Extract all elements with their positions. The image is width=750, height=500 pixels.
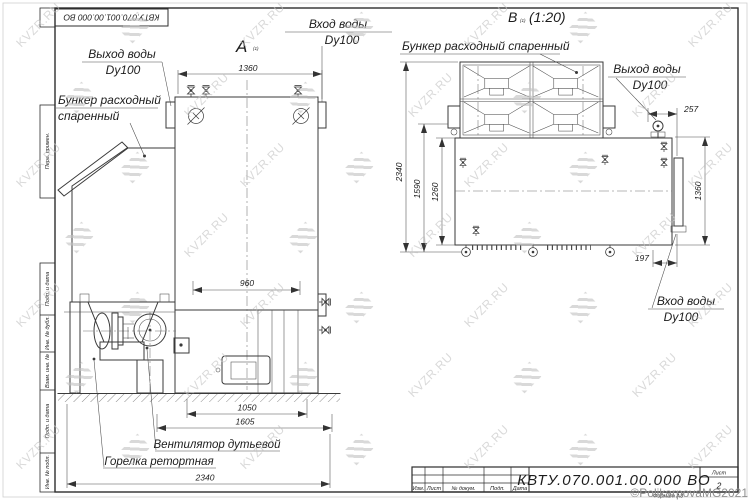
callout-a-water-out-line1: Выход воды xyxy=(88,47,156,61)
dim-a-1050: 1050 xyxy=(238,403,257,413)
dim-b-2340: 2340 xyxy=(394,162,404,182)
margin-label-inv-podl: Инв. № подл. xyxy=(45,455,51,489)
callout-b-water-in-line1: Вход воды xyxy=(657,294,715,308)
dim-b-197: 197 xyxy=(635,253,649,263)
callout-b-water-out-line2: Dy100 xyxy=(633,78,668,92)
sheet-label: Лист xyxy=(711,471,727,477)
dim-b-257: 257 xyxy=(683,104,698,114)
top-doc-number: КВТУ.070.001.00.000 ВО xyxy=(63,13,159,23)
dim-b-1260: 1260 xyxy=(430,182,440,201)
callout-a-water-in-line2: Dy100 xyxy=(325,33,360,47)
margin-label-podp-data-1: Подп. и дата xyxy=(45,272,51,306)
dim-a-2340: 2340 xyxy=(195,473,215,483)
view-a-title-note: (1) xyxy=(253,46,259,51)
view-a: А (1) xyxy=(56,17,392,488)
title-col-izm: Изм. xyxy=(413,486,425,492)
copyright-text: ©PolikarpovaMG2021 xyxy=(630,486,748,500)
view-b-title: В xyxy=(508,9,517,25)
view-b: В (1) (1:20) xyxy=(394,9,724,324)
title-col-list: Лист xyxy=(426,486,442,492)
callout-a-bunker-line2: спаренный xyxy=(58,109,120,123)
callout-a-burner: Горелка ретортная xyxy=(104,456,213,468)
dim-a-960: 960 xyxy=(240,278,254,288)
dim-a-1605: 1605 xyxy=(236,417,255,427)
callout-b-water-out-line1: Выход воды xyxy=(613,62,681,76)
dim-b-1360: 1360 xyxy=(693,181,703,200)
margin-label-inv-dubl: Инв. № дубл. xyxy=(45,316,51,350)
dim-b-1590: 1590 xyxy=(412,179,422,198)
callout-a-water-out-line2: Dy100 xyxy=(106,63,141,77)
margin-label-vzam-inv: Взам. инв. № xyxy=(45,354,51,388)
drawing-sheet: КВТУ.070.001.00.000 ВО Перв. примен. Под… xyxy=(0,0,750,500)
view-b-callouts: Бункер расходный спаренный Выход воды Dy… xyxy=(400,39,724,324)
callout-b-bunker: Бункер расходный спаренный xyxy=(402,39,570,53)
margin-label-podp-data-2: Подп. и дата xyxy=(45,404,51,438)
frame-margin-column: Перв. примен. Подп. и дата Инв. № дубл. … xyxy=(40,8,55,492)
view-a-dimensions: 1360 960 1050 1605 2340 xyxy=(67,63,332,488)
view-b-title-scale: (1:20) xyxy=(529,9,566,25)
dim-a-1360: 1360 xyxy=(239,63,258,73)
view-b-title-note: (1) xyxy=(520,18,526,23)
callout-a-bunker-line1: Бункер расходный xyxy=(58,93,161,107)
title-col-dokum: № докум. xyxy=(451,486,475,492)
callout-a-water-in-line1: Вход воды xyxy=(309,17,367,31)
callout-a-fan: Вентилятор дутьевой xyxy=(154,439,282,451)
drawing-canvas: КВТУ.070.001.00.000 ВО Перв. примен. Под… xyxy=(0,0,750,500)
view-b-dimensions: 2340 1590 1260 257 1360 197 xyxy=(394,62,710,267)
margin-label-perv-primen: Перв. примен. xyxy=(45,133,51,170)
view-a-title: А xyxy=(235,37,247,56)
callout-b-water-in-line2: Dy100 xyxy=(664,310,699,324)
title-col-podp: Подп. xyxy=(490,486,505,492)
